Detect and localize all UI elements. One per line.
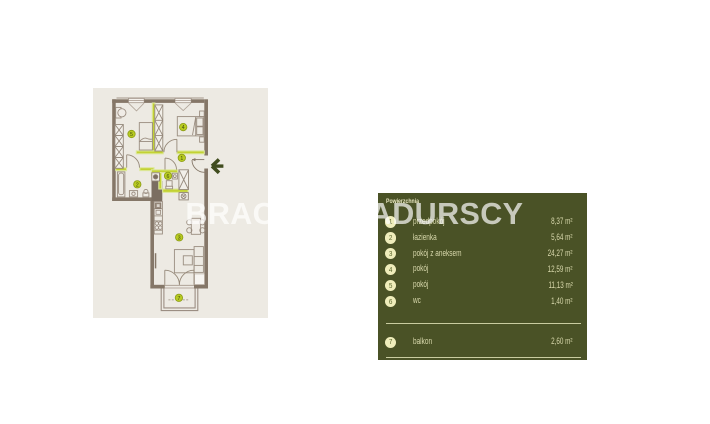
svg-text:6: 6 — [167, 174, 170, 180]
svg-text:1: 1 — [180, 156, 183, 162]
svg-text:4: 4 — [182, 125, 185, 131]
svg-text:5: 5 — [130, 132, 133, 138]
svg-text:7: 7 — [177, 296, 180, 302]
svg-text:3: 3 — [178, 235, 181, 241]
svg-text:2: 2 — [136, 182, 139, 188]
